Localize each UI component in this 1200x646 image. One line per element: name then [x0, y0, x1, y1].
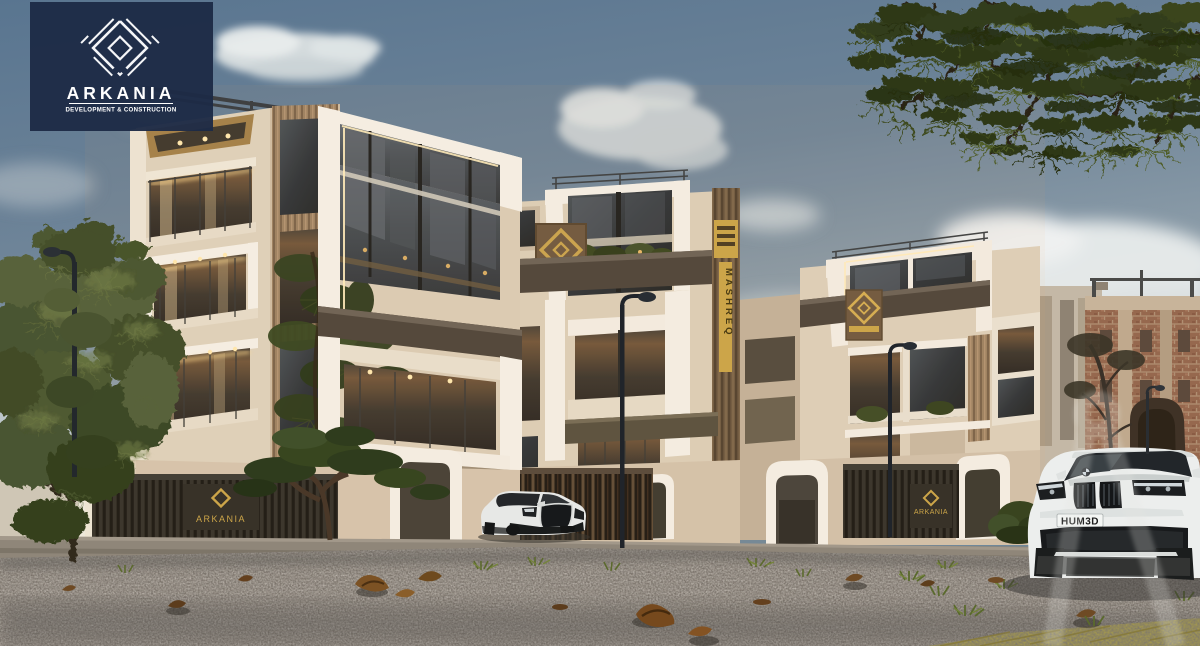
svg-text:DEVELOPMENT & CONSTRUCTION: DEVELOPMENT & CONSTRUCTION	[65, 107, 176, 114]
svg-text:ARKANIA: ARKANIA	[67, 83, 176, 103]
